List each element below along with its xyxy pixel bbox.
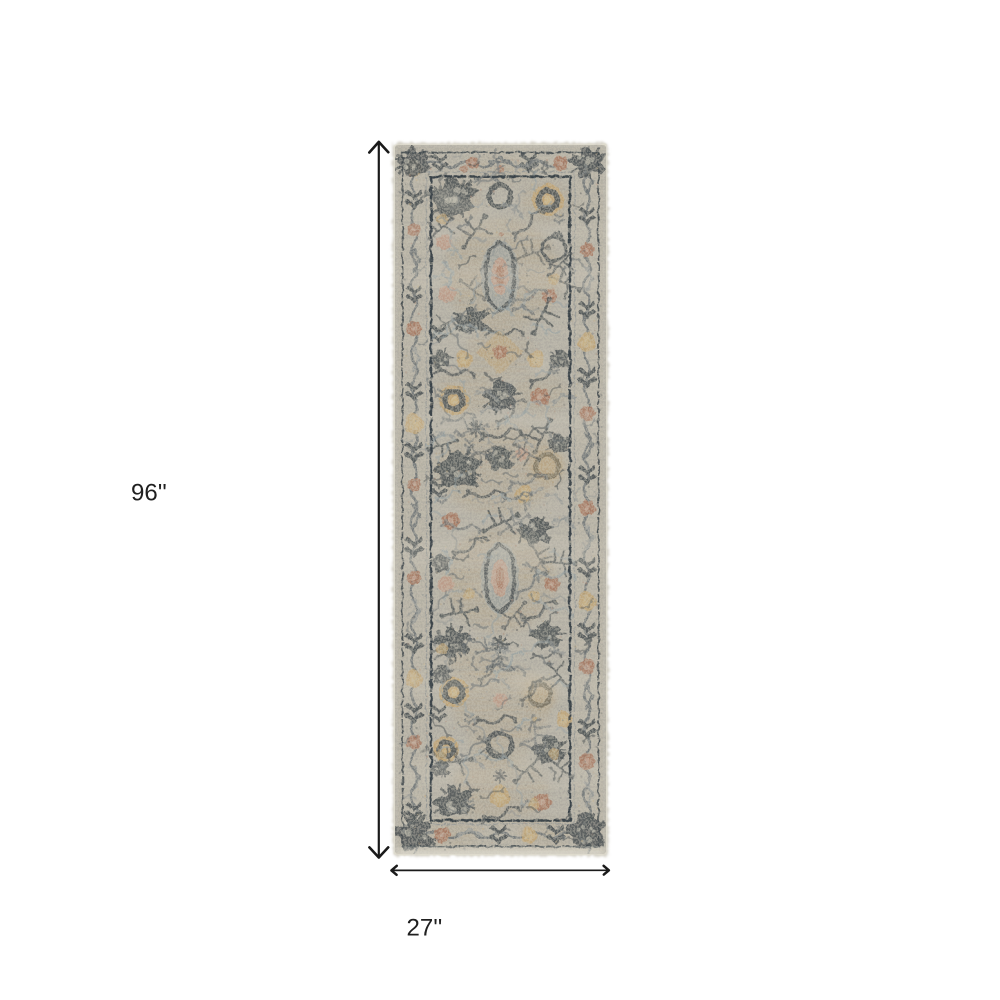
svg-text:27'': 27'' [407, 915, 443, 942]
svg-text:96'': 96'' [131, 480, 167, 507]
